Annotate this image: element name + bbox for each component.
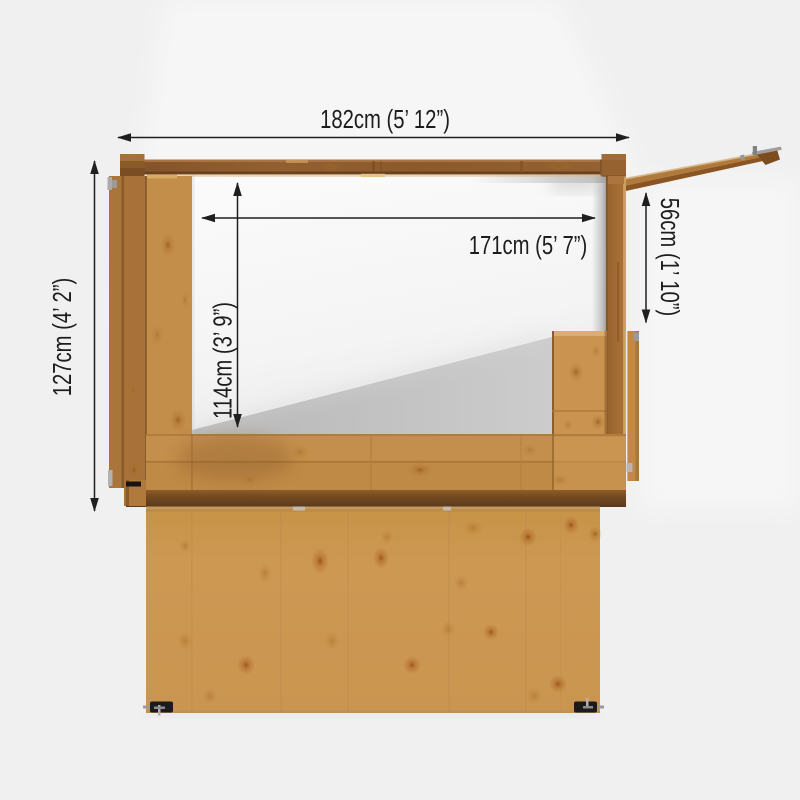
svg-text:182cm (5’ 12”): 182cm (5’ 12”) (320, 105, 450, 134)
svg-text:56cm (1’ 10”): 56cm (1’ 10”) (655, 198, 684, 317)
svg-text:114cm (3’ 9”): 114cm (3’ 9”) (208, 302, 237, 419)
svg-text:127cm (4’ 2”): 127cm (4’ 2”) (48, 278, 77, 397)
svg-text:171cm (5’ 7”): 171cm (5’ 7”) (469, 231, 588, 260)
